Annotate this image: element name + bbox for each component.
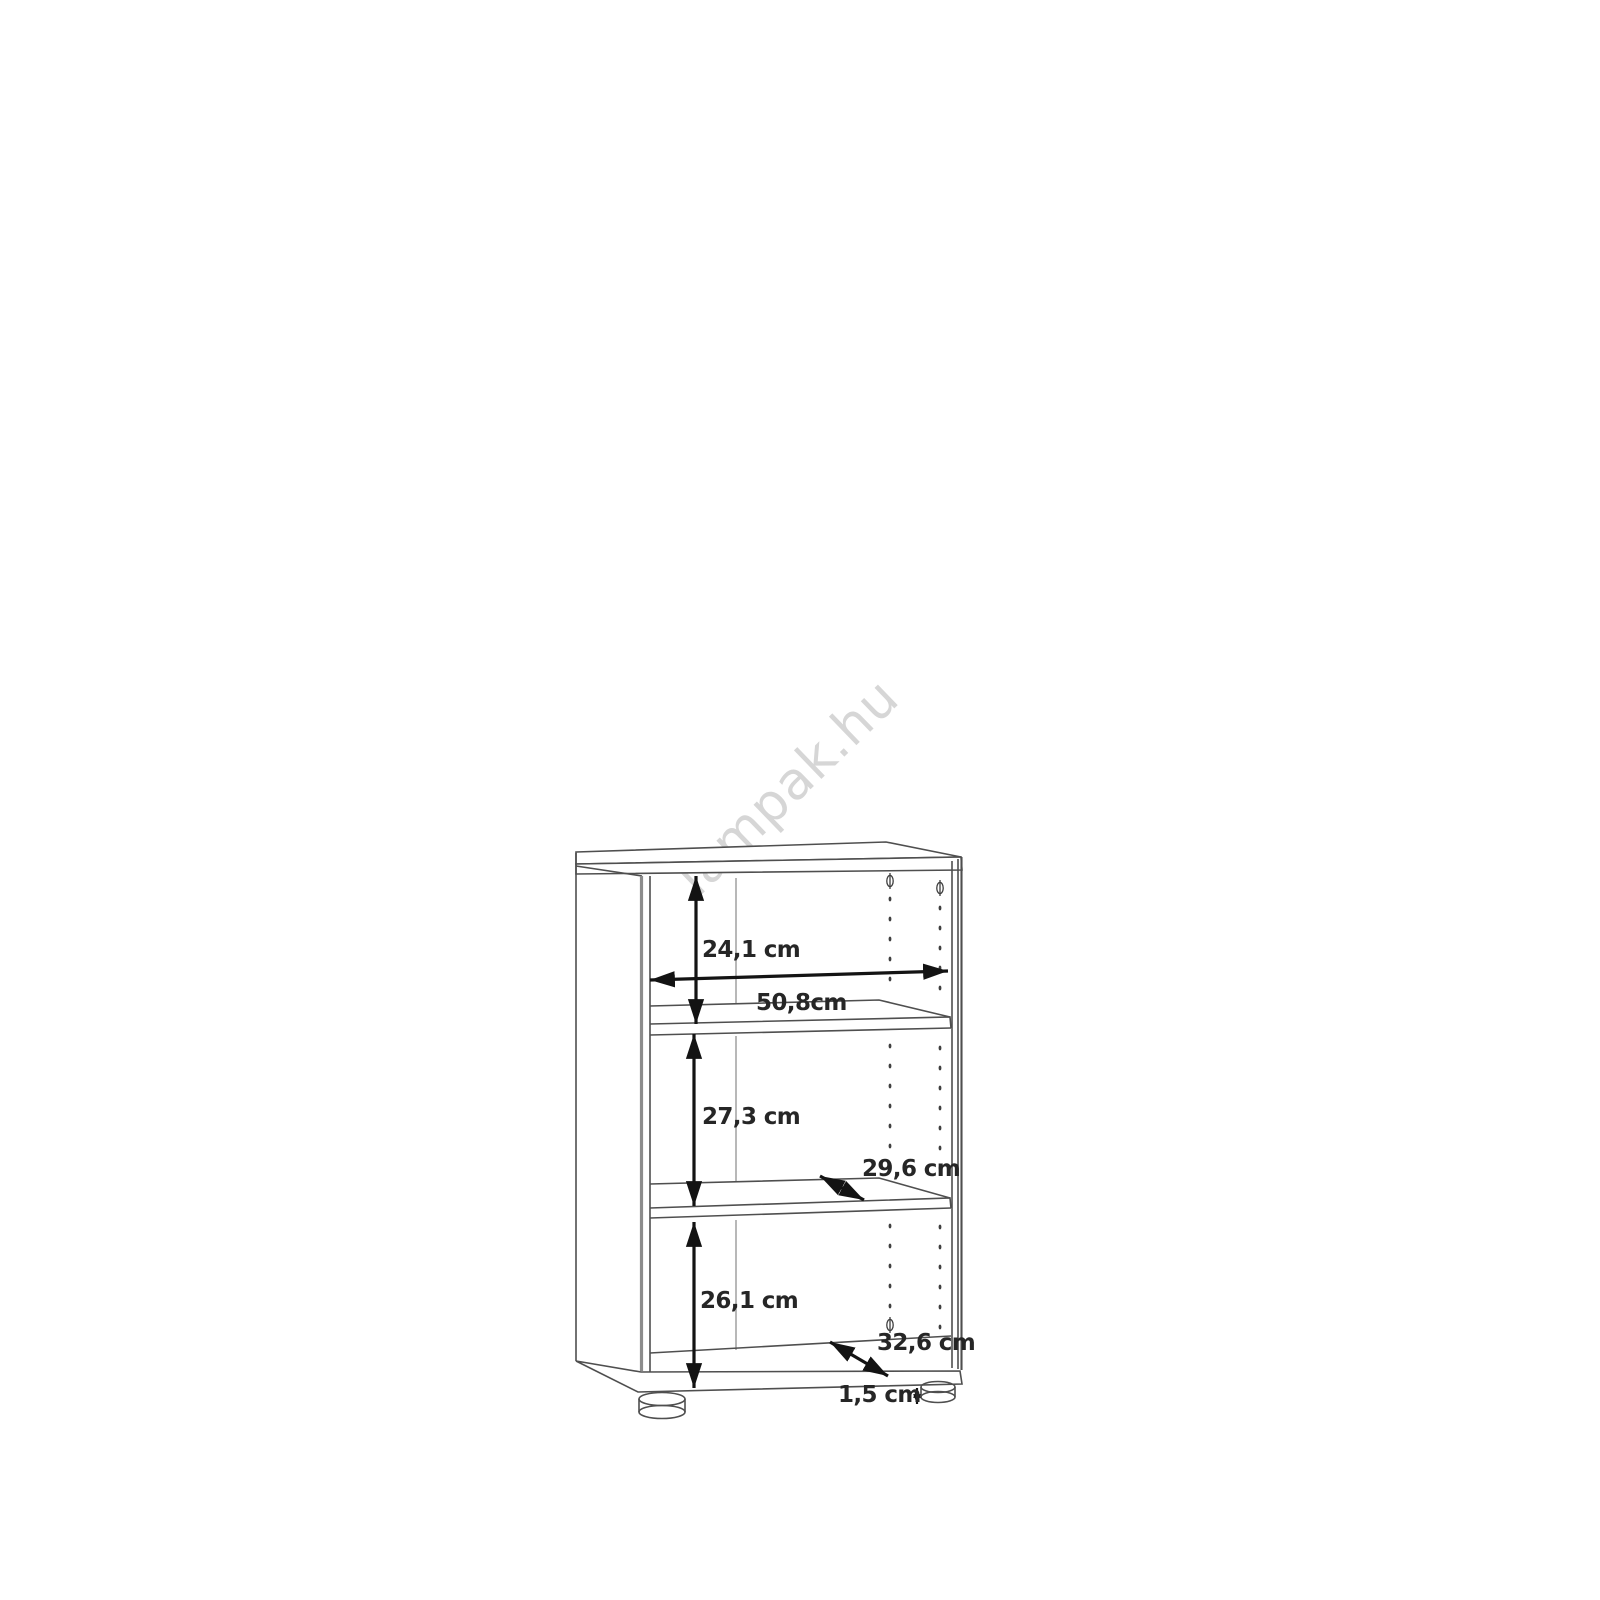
shelf-pin-hole xyxy=(939,1126,942,1131)
shelf-pin-hole xyxy=(889,1124,892,1129)
shelf-pin-hole xyxy=(939,1046,942,1051)
keyhole-fitting xyxy=(887,873,893,889)
shelf-pin-hole xyxy=(889,1144,892,1149)
shelf-pin-hole xyxy=(939,1285,942,1290)
shelf-pin-holes xyxy=(887,873,943,1333)
dim-label-middle-section-height: 27,3 cm xyxy=(702,1104,800,1130)
shelf-pin-hole xyxy=(889,977,892,982)
shelf-pin-hole xyxy=(889,1304,892,1309)
shelf-pin-hole xyxy=(939,1265,942,1270)
shelf-pin-hole xyxy=(939,986,942,991)
dim-label-interior-width: 50,8cm xyxy=(756,990,847,1016)
cabinet-top-panel xyxy=(576,842,962,876)
shelf-pin-hole xyxy=(889,1064,892,1069)
dim-label-foot-height: 1,5 cm xyxy=(838,1382,921,1408)
shelf-pin-hole xyxy=(939,1106,942,1111)
shelf-pin-hole xyxy=(889,957,892,962)
shelf-pin-hole xyxy=(889,937,892,942)
shelf-pin-hole xyxy=(939,1225,942,1230)
dimension-labels: 24,1 cm 50,8cm 27,3 cm 29,6 cm 26,1 cm 3… xyxy=(700,937,975,1408)
shelf-pin-hole xyxy=(939,906,942,911)
shelf-pin-hole xyxy=(939,1305,942,1310)
shelf-pin-hole xyxy=(889,1264,892,1269)
shelf-pin-hole xyxy=(889,1224,892,1229)
dim-label-top-section-height: 24,1 cm xyxy=(702,937,800,963)
dim-label-bottom-section-height: 26,1 cm xyxy=(700,1288,798,1314)
diagram-svg: lampak.hu xyxy=(0,0,1600,1600)
shelf-pin-hole xyxy=(939,1325,942,1330)
shelf-pin-hole xyxy=(889,1084,892,1089)
shelf-pin-hole xyxy=(939,946,942,951)
shelf-pin-hole xyxy=(889,897,892,902)
shelf-pin-hole xyxy=(939,1066,942,1071)
shelf-pin-hole xyxy=(939,1245,942,1250)
cabinet-left-side-panel xyxy=(576,853,650,1372)
dim-label-bottom-depth: 32,6 cm xyxy=(877,1330,975,1356)
shelf-pin-hole xyxy=(889,1104,892,1109)
shelf-pin-hole xyxy=(939,1146,942,1151)
shelf-pin-hole xyxy=(889,1044,892,1049)
shelf-pin-hole xyxy=(889,917,892,922)
shelf-pin-hole xyxy=(939,1086,942,1091)
shelf-pin-hole xyxy=(889,1284,892,1289)
left-foot xyxy=(639,1393,685,1419)
shelf-pin-hole xyxy=(939,926,942,931)
dim-label-shelf-depth: 29,6 cm xyxy=(862,1156,960,1182)
cabinet-right-side-panel xyxy=(952,857,962,1370)
keyhole-fitting xyxy=(937,880,943,896)
shelf-pin-hole xyxy=(889,1244,892,1249)
product-dimension-diagram: lampak.hu xyxy=(0,0,1600,1600)
